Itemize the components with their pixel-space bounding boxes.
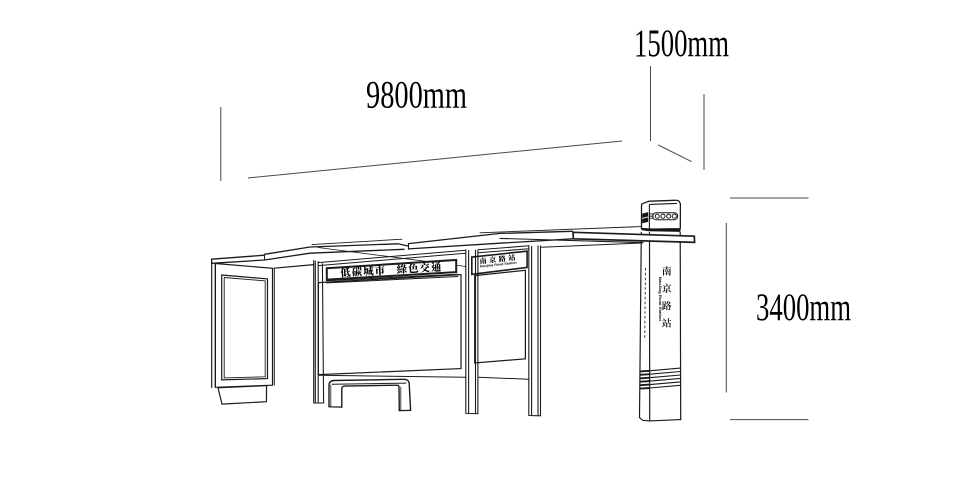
svg-text:NanJing Road Station: NanJing Road Station [658, 277, 662, 321]
svg-text:1500mm: 1500mm [634, 22, 729, 65]
svg-text:9800mm: 9800mm [366, 74, 467, 117]
svg-text:3400mm: 3400mm [756, 286, 851, 329]
